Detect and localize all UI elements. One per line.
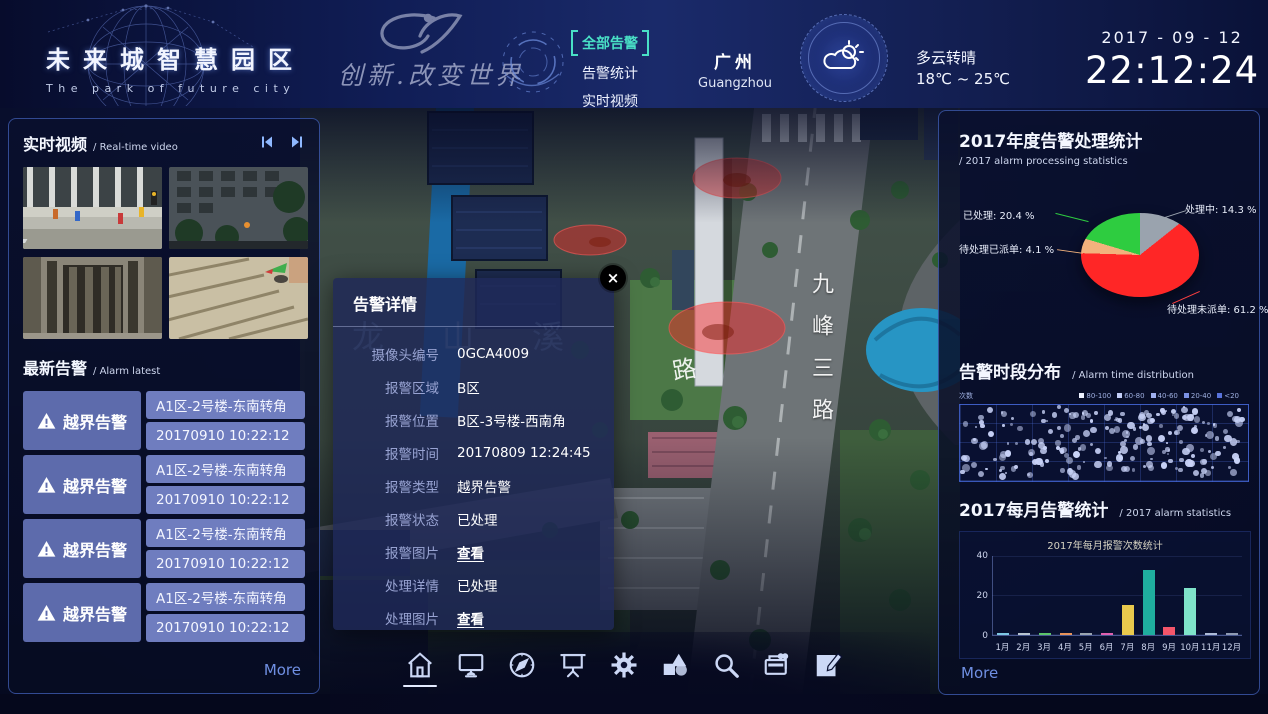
sun-cloud-icon bbox=[822, 38, 866, 78]
field-value: B区 bbox=[457, 377, 480, 397]
alarm-row[interactable]: 越界告警A1区-2号楼-东南转角20170910 10:22:12 bbox=[23, 391, 305, 450]
alarm-location: A1区-2号楼-东南转角 bbox=[146, 455, 305, 483]
pie-label-doing: 处理中: 14.3 % bbox=[1185, 201, 1257, 216]
skip-back-icon[interactable] bbox=[259, 134, 275, 150]
brand: 未来城智慧园区 The park of future city bbox=[46, 40, 305, 95]
bar-column bbox=[1055, 556, 1076, 635]
company-logo-icon bbox=[362, 6, 472, 62]
bar bbox=[1039, 633, 1051, 635]
pie-area: 已处理: 20.4 % 处理中: 14.3 % 待处理已派单: 4.1 % 待处… bbox=[959, 171, 1239, 356]
scatter-meta: 次数 80-10060-8040-6020-40<20 bbox=[959, 391, 1239, 401]
field-value: B区-3号楼-西南角 bbox=[457, 410, 566, 430]
video-section-header: 实时视频 / Real-time video bbox=[23, 131, 305, 155]
bar bbox=[1080, 633, 1092, 635]
bar bbox=[1018, 633, 1030, 635]
alarm-time: 20170910 10:22:12 bbox=[146, 550, 305, 578]
bar-ytick: 40 bbox=[968, 551, 988, 561]
modal-field-row: 报警位置B区-3号楼-西南角 bbox=[333, 403, 614, 436]
pie-label-pending: 待处理未派单: 61.2 % bbox=[1167, 301, 1268, 316]
alarm-location: A1区-2号楼-东南转角 bbox=[146, 519, 305, 547]
pie-label-dispatched: 待处理已派单: 4.1 % bbox=[959, 241, 1054, 256]
dashboard: 九峰三路 路 龙山溪 未来城智慧园区 The park of future ci… bbox=[0, 0, 1268, 714]
bar bbox=[1060, 633, 1072, 635]
scatter-legend-item: 40-60 bbox=[1151, 392, 1178, 400]
scatter-axis-label: 次数 bbox=[959, 391, 973, 401]
pie-leader-line bbox=[1055, 213, 1088, 222]
modal-field-row: 处理图片查看 bbox=[333, 601, 614, 634]
field-label: 报警状态 bbox=[351, 509, 439, 529]
time-text: 22:12:24 bbox=[1085, 49, 1259, 92]
scatter-legend-item: <20 bbox=[1217, 392, 1239, 400]
alarm-detail-modal: × 告警详情 摄像头编号0GCA4009报警区域B区报警位置B区-3号楼-西南角… bbox=[333, 278, 614, 630]
header: 未来城智慧园区 The park of future city 创新.改变世界 … bbox=[0, 0, 1268, 108]
bar-ytick: 0 bbox=[968, 631, 988, 641]
alarm-type: 越界告警 bbox=[23, 583, 141, 642]
taskbar bbox=[405, 650, 843, 688]
field-label: 处理详情 bbox=[351, 575, 439, 595]
city-name-cn: 广州 bbox=[698, 48, 772, 73]
bar-category-label: 2月 bbox=[1013, 641, 1034, 653]
modal-field-row: 报警类型越界告警 bbox=[333, 469, 614, 502]
app-title: 未来城智慧园区 bbox=[46, 40, 305, 75]
field-label: 报警区域 bbox=[351, 377, 439, 397]
datetime: 2017 - 09 - 12 22:12:24 bbox=[1085, 28, 1259, 92]
bar-category-label: 7月 bbox=[1117, 641, 1138, 653]
video-thumbnail-street[interactable] bbox=[23, 167, 162, 249]
bar-column bbox=[1221, 556, 1242, 635]
bar bbox=[1184, 588, 1196, 635]
alarm-meta: A1区-2号楼-东南转角20170910 10:22:12 bbox=[146, 583, 305, 642]
alarm-row[interactable]: 越界告警A1区-2号楼-东南转角20170910 10:22:12 bbox=[23, 519, 305, 578]
road-name-vertical: 九峰三路 bbox=[804, 272, 836, 440]
bar-column bbox=[1201, 556, 1222, 635]
view-link[interactable]: 查看 bbox=[457, 608, 484, 628]
video-thumbnail-building[interactable] bbox=[169, 167, 308, 249]
bar bbox=[1143, 570, 1155, 635]
bar-chart: 2017年每月报警次数统计 1月2月3月4月5月6月7月8月9月10月11月12… bbox=[959, 531, 1251, 659]
alarm-list: 越界告警A1区-2号楼-东南转角20170910 10:22:12越界告警A1区… bbox=[23, 391, 305, 642]
bar bbox=[1122, 605, 1134, 635]
bar-category-label: 8月 bbox=[1138, 641, 1159, 653]
field-label: 报警时间 bbox=[351, 443, 439, 463]
left-panel: 实时视频 / Real-time video bbox=[8, 118, 320, 694]
projector-screen-icon[interactable] bbox=[558, 650, 588, 688]
pie-chart bbox=[1081, 213, 1199, 297]
scatter-subtitle: / Alarm time distribution bbox=[1072, 370, 1194, 381]
bar-panel-title: 2017每月告警统计 bbox=[959, 501, 1108, 521]
bar-category-label: 6月 bbox=[1096, 641, 1117, 653]
alarm-location: A1区-2号楼-东南转角 bbox=[146, 391, 305, 419]
alarm-time: 20170910 10:22:12 bbox=[146, 422, 305, 450]
field-value: 越界告警 bbox=[457, 476, 511, 496]
alarm-type: 越界告警 bbox=[23, 391, 141, 450]
bar-category-label: 1月 bbox=[992, 641, 1013, 653]
weather-temp: 18℃ ~ 25℃ bbox=[916, 69, 1010, 90]
pie-label-done: 已处理: 20.4 % bbox=[963, 207, 1035, 222]
bar-category-label: 3月 bbox=[1034, 641, 1055, 653]
alarm-time: 20170910 10:22:12 bbox=[146, 614, 305, 642]
scatter-legend: 80-10060-8040-6020-40<20 bbox=[1079, 392, 1239, 400]
modal-field-row: 处理详情已处理 bbox=[333, 568, 614, 601]
alarm-subtitle: / Alarm latest bbox=[93, 366, 160, 377]
menu-item-alarm-stats[interactable]: 告警统计 bbox=[578, 62, 642, 84]
pie-title: 2017年度告警处理统计 bbox=[959, 132, 1142, 152]
records-card-icon[interactable] bbox=[762, 650, 792, 688]
video-subtitle: / Real-time video bbox=[93, 142, 178, 153]
field-label: 报警类型 bbox=[351, 476, 439, 496]
bar-ytick: 20 bbox=[968, 591, 988, 601]
shapes-icon[interactable] bbox=[660, 650, 690, 688]
video-thumbnail-entrance[interactable] bbox=[23, 257, 162, 339]
bar-column bbox=[1180, 556, 1201, 635]
bar bbox=[1226, 633, 1238, 635]
field-value: 已处理 bbox=[457, 509, 498, 529]
field-label: 报警图片 bbox=[351, 542, 439, 562]
close-icon[interactable]: × bbox=[600, 265, 626, 291]
edit-icon[interactable] bbox=[813, 650, 843, 688]
alarm-type: 越界告警 bbox=[23, 519, 141, 578]
bar-panel-subtitle: / 2017 alarm statistics bbox=[1119, 508, 1231, 519]
bar-category-label: 11月 bbox=[1200, 641, 1221, 653]
settings-gear-icon[interactable] bbox=[609, 650, 639, 688]
alarm-time: 20170910 10:22:12 bbox=[146, 486, 305, 514]
pie-section-header: 2017年度告警处理统计 / 2017 alarm processing sta… bbox=[959, 127, 1239, 167]
alarm-row[interactable]: 越界告警A1区-2号楼-东南转角20170910 10:22:12 bbox=[23, 583, 305, 642]
bar-column bbox=[1014, 556, 1035, 635]
header-menu: 全部告警 告警统计 实时视频 bbox=[578, 32, 642, 112]
alarm-type: 越界告警 bbox=[23, 455, 141, 514]
modal-field-row: 报警状态已处理 bbox=[333, 502, 614, 535]
bar-column bbox=[1035, 556, 1056, 635]
alarm-meta: A1区-2号楼-东南转角20170910 10:22:12 bbox=[146, 519, 305, 578]
field-value: 已处理 bbox=[457, 575, 498, 595]
stats-more-link[interactable]: More bbox=[961, 664, 998, 682]
video-title: 实时视频 bbox=[23, 131, 87, 155]
bar-chart-title: 2017年每月报警次数统计 bbox=[960, 532, 1250, 552]
field-label: 报警位置 bbox=[351, 410, 439, 430]
video-grid bbox=[23, 167, 305, 339]
modal-field-row: 摄像头编号0GCA4009 bbox=[333, 337, 614, 370]
view-link[interactable]: 查看 bbox=[457, 542, 484, 562]
home-icon[interactable] bbox=[405, 650, 435, 688]
field-label: 处理图片 bbox=[351, 608, 439, 628]
alarm-title: 最新告警 bbox=[23, 355, 87, 379]
pie-subtitle: / 2017 alarm processing statistics bbox=[959, 156, 1239, 167]
modal-title: 告警详情 bbox=[333, 278, 614, 327]
scatter-title: 告警时段分布 bbox=[959, 363, 1061, 383]
bar-column bbox=[1118, 556, 1139, 635]
compass-icon[interactable] bbox=[507, 650, 537, 688]
scatter-legend-item: 60-80 bbox=[1117, 392, 1144, 400]
active-tab-underline bbox=[403, 685, 437, 687]
bar-category-label: 4月 bbox=[1054, 641, 1075, 653]
bar bbox=[1101, 633, 1113, 635]
monitor-icon[interactable] bbox=[456, 650, 486, 688]
modal-field-row: 报警图片查看 bbox=[333, 535, 614, 568]
scatter-section-header: 告警时段分布 / Alarm time distribution bbox=[959, 358, 1239, 383]
alarm-meta: A1区-2号楼-东南转角20170910 10:22:12 bbox=[146, 455, 305, 514]
field-value: 20170809 12:24:45 bbox=[457, 445, 591, 461]
alarm-meta: A1区-2号楼-东南转角20170910 10:22:12 bbox=[146, 391, 305, 450]
search-icon[interactable] bbox=[711, 650, 741, 688]
modal-field-row: 报警时间20170809 12:24:45 bbox=[333, 436, 614, 469]
video-thumbnail-stairs[interactable] bbox=[169, 257, 308, 339]
bar-chart-categories: 1月2月3月4月5月6月7月8月9月10月11月12月 bbox=[992, 641, 1242, 653]
bar-column bbox=[1138, 556, 1159, 635]
bar-category-label: 12月 bbox=[1221, 641, 1242, 653]
bar-chart-bars bbox=[992, 556, 1242, 636]
alarm-row[interactable]: 越界告警A1区-2号楼-东南转角20170910 10:22:12 bbox=[23, 455, 305, 514]
modal-field-row: 报警区域B区 bbox=[333, 370, 614, 403]
modal-fields: 摄像头编号0GCA4009报警区域B区报警位置B区-3号楼-西南角报警时间201… bbox=[333, 327, 614, 640]
alarm-section-header: 最新告警 / Alarm latest bbox=[23, 355, 305, 379]
bar-section-header: 2017每月告警统计 / 2017 alarm statistics bbox=[959, 496, 1239, 521]
bar-category-label: 5月 bbox=[1075, 641, 1096, 653]
right-panel: 2017年度告警处理统计 / 2017 alarm processing sta… bbox=[938, 110, 1260, 695]
bar-column bbox=[1159, 556, 1180, 635]
scatter-legend-item: 20-40 bbox=[1184, 392, 1211, 400]
bar bbox=[1163, 627, 1175, 635]
bar-column bbox=[1076, 556, 1097, 635]
bar bbox=[1205, 633, 1217, 635]
scatter-plot bbox=[959, 404, 1249, 482]
weather-emblem bbox=[800, 14, 888, 102]
bar-category-label: 9月 bbox=[1159, 641, 1180, 653]
bar-category-label: 10月 bbox=[1179, 641, 1200, 653]
weather-condition: 多云转晴 bbox=[916, 48, 1010, 69]
weather-text: 多云转晴 18℃ ~ 25℃ bbox=[916, 48, 1010, 90]
date-text: 2017 - 09 - 12 bbox=[1085, 28, 1259, 47]
skip-forward-icon[interactable] bbox=[289, 134, 305, 150]
menu-item-all-alarms[interactable]: 全部告警 bbox=[578, 32, 642, 54]
menu-item-realtime-video[interactable]: 实时视频 bbox=[578, 90, 642, 112]
city-block: 广州 Guangzhou bbox=[698, 48, 772, 91]
bar bbox=[997, 633, 1009, 635]
scatter-legend-item: 80-100 bbox=[1079, 392, 1111, 400]
city-name-en: Guangzhou bbox=[698, 76, 772, 91]
pie-leader-line bbox=[1057, 249, 1083, 254]
bar-column bbox=[993, 556, 1014, 635]
app-subtitle: The park of future city bbox=[46, 82, 305, 95]
swirl-ring-graphic bbox=[497, 26, 569, 98]
field-label: 摄像头编号 bbox=[351, 344, 439, 364]
field-value: 0GCA4009 bbox=[457, 346, 529, 362]
alarm-location: A1区-2号楼-东南转角 bbox=[146, 583, 305, 611]
alarm-more-link[interactable]: More bbox=[264, 661, 301, 679]
bar-column bbox=[1097, 556, 1118, 635]
